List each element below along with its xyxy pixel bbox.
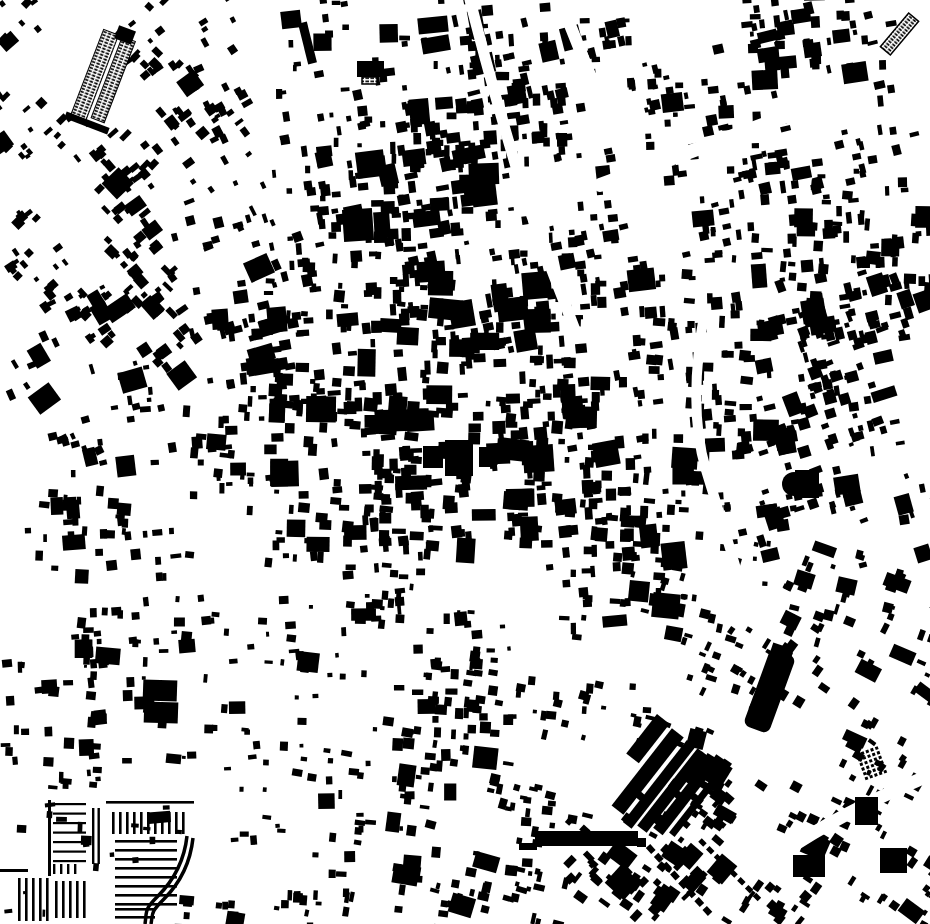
map-canvas xyxy=(0,0,930,924)
figure-ground-map xyxy=(0,0,930,924)
